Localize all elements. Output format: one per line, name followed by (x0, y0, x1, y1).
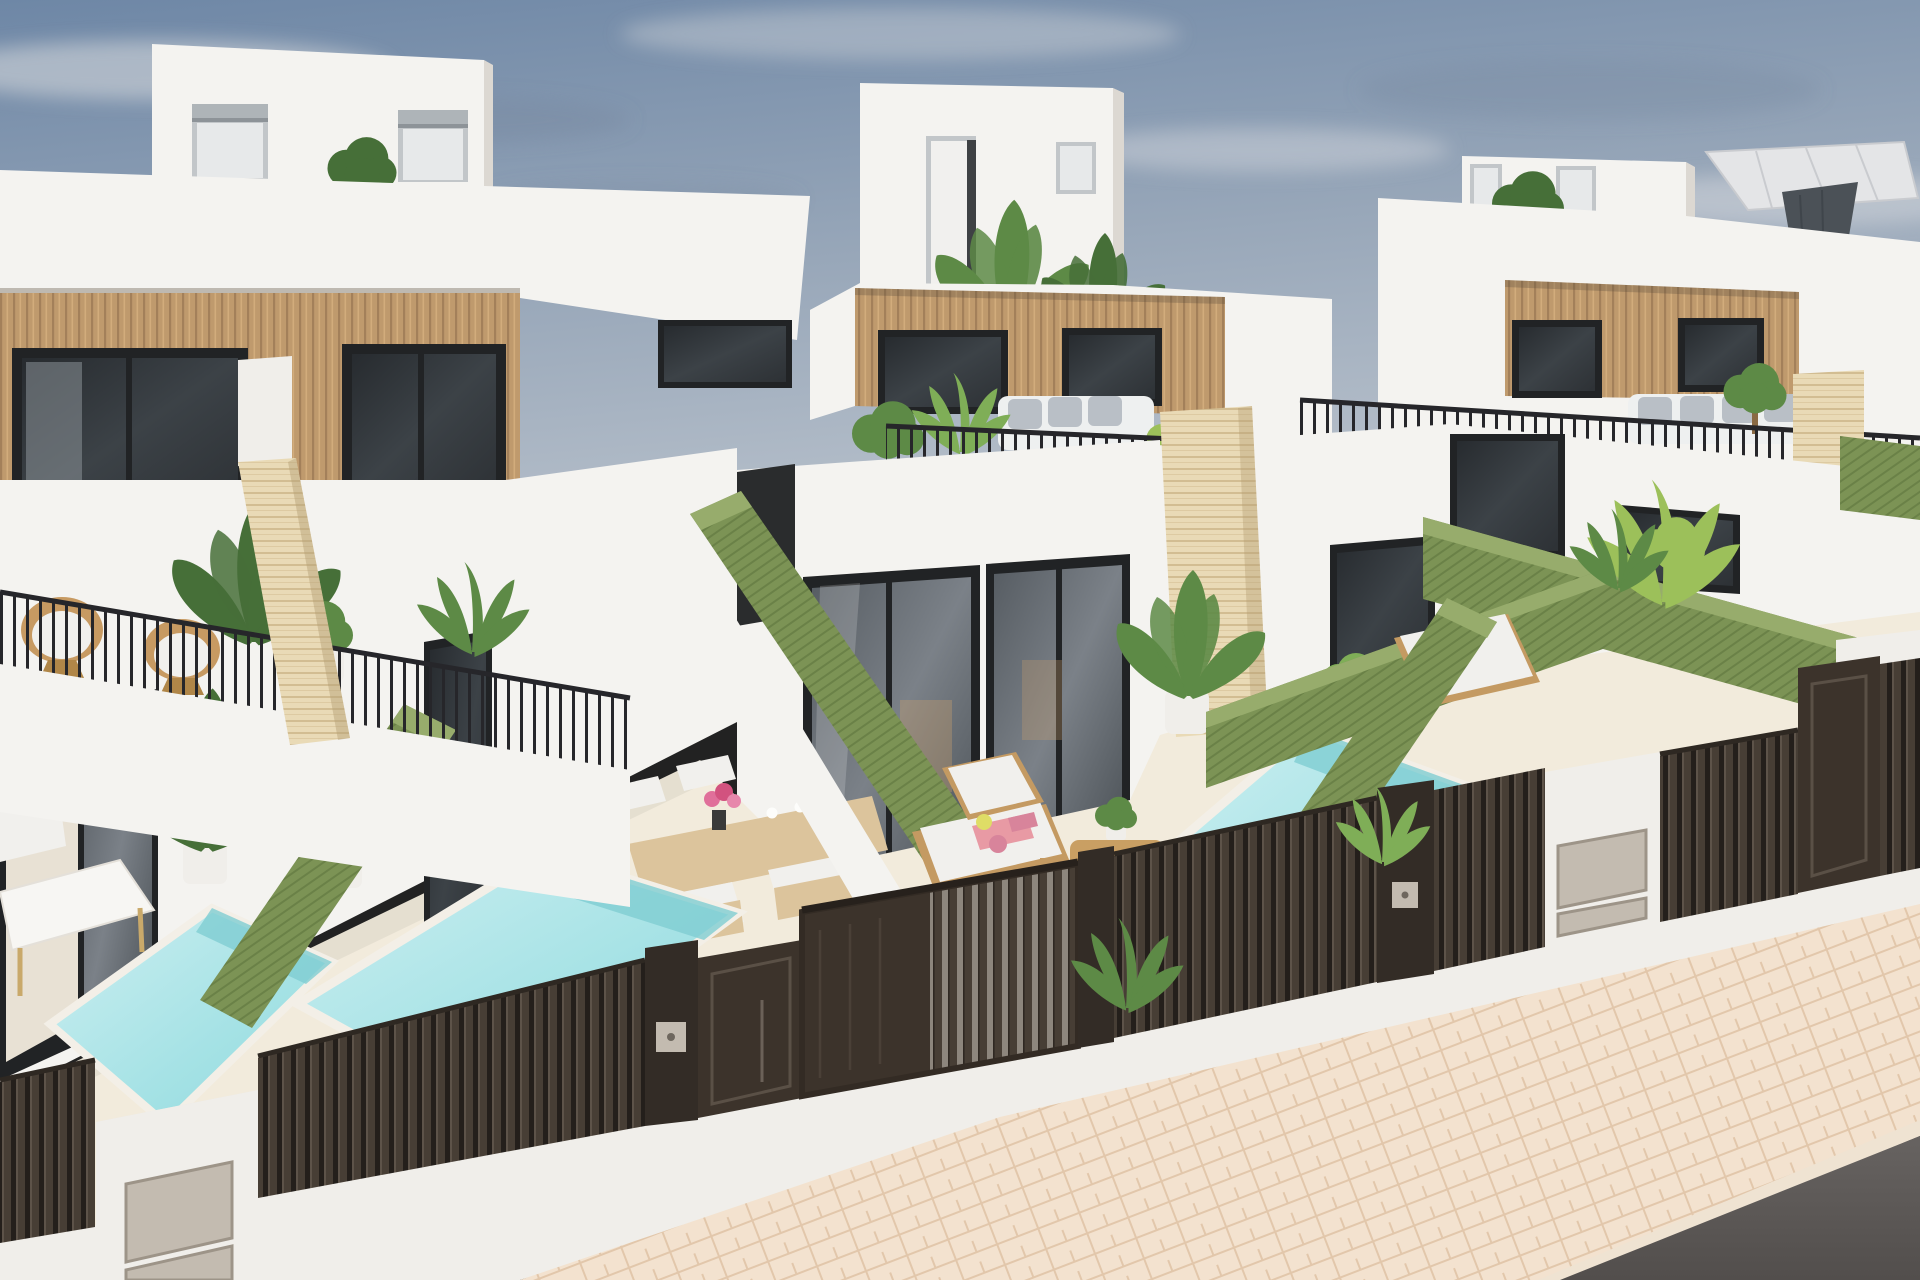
upper-dark-window (1062, 328, 1162, 406)
entry-pillar (1545, 752, 1660, 946)
rooftop-window (398, 110, 468, 182)
side-gate (1798, 656, 1880, 893)
plant-pot (1165, 690, 1209, 734)
slat-fence (0, 1060, 95, 1243)
cup (767, 808, 778, 819)
sun-hat (976, 814, 992, 830)
towel-roll (989, 835, 1007, 853)
gate-post (645, 940, 698, 1126)
villa-render: Aerial 3D render of new-build white vill… (0, 0, 1920, 1280)
slat-fence (1880, 658, 1920, 876)
slat-fence (1434, 768, 1545, 971)
render-canvas: Aerial 3D render of new-build white vill… (0, 0, 1920, 1280)
entry-pillar (96, 1090, 276, 1280)
rooftop-window (1056, 142, 1096, 194)
upper-dark-window (1512, 320, 1602, 398)
rooftop-window (192, 104, 268, 180)
pedestrian-door (698, 940, 802, 1118)
slat-fence (1660, 730, 1798, 922)
upper-dark-window (658, 320, 792, 388)
hedge-wall (1840, 436, 1920, 520)
white-pillar (238, 356, 292, 466)
